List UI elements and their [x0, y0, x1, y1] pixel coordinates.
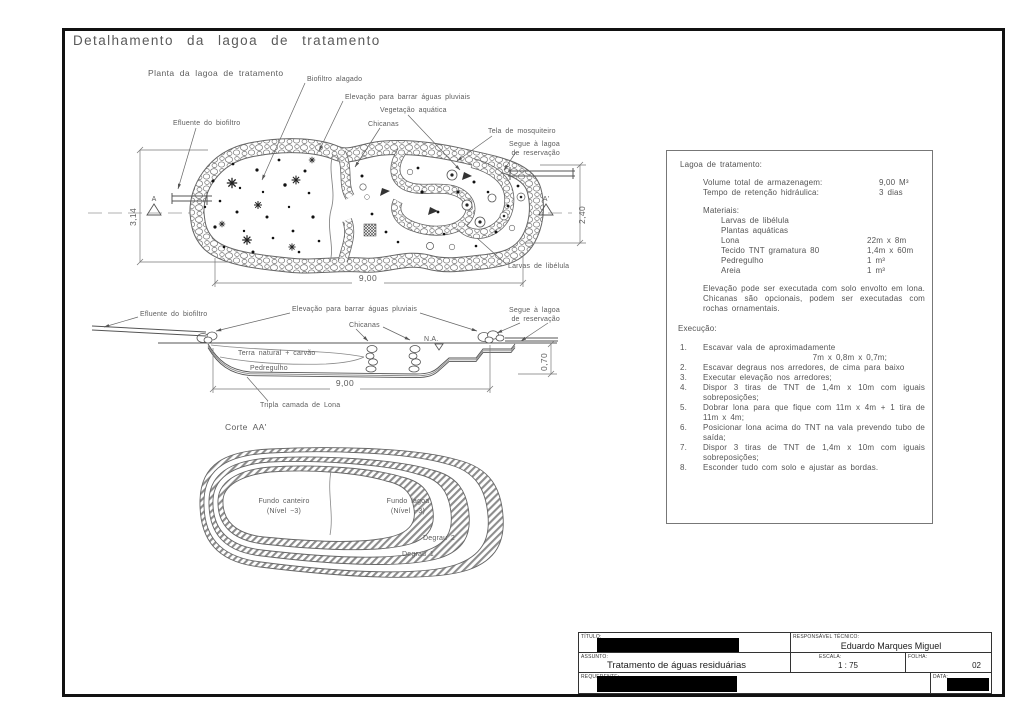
panel-note: Elevação pode ser executada com solo env… [667, 284, 932, 314]
step-number: 4. [680, 383, 703, 403]
spec-label: Volume total de armazenagem: [703, 178, 853, 188]
material-name: Lona [721, 236, 867, 246]
step-number: 5. [680, 403, 703, 423]
material-row: Lona 22m x 8m [667, 236, 932, 246]
execution-step: 2. Escavar degraus nos arredores, de cim… [667, 363, 932, 373]
titleblock-cell-data: DATA: [931, 673, 991, 693]
step-number: 8. [680, 463, 703, 473]
material-qty [867, 226, 925, 236]
execution-step: 5. Dobrar lona para que fique com 11m x … [667, 403, 932, 423]
folha-label: FOLHA: [908, 654, 927, 660]
step-text: Dobrar lona para que fique com 11m x 4m … [703, 403, 932, 423]
step-number: 6. [680, 423, 703, 443]
responsavel-value: Eduardo Marques Miguel [791, 641, 991, 651]
titleblock-cell-titulo: TÍTULO: [579, 633, 791, 653]
material-name: Larvas de libélula [721, 216, 867, 226]
spec-label: Tempo de retenção hidráulica: [703, 188, 853, 198]
step-text: Dispor 3 tiras de TNT de 1,4m x 10m com … [703, 443, 932, 463]
assunto-value: Tratamento de águas residuárias [607, 660, 746, 671]
material-name: Tecido TNT gramatura 80 [721, 246, 867, 256]
material-row: Areia 1 m³ [667, 266, 932, 276]
material-name: Plantas aquáticas [721, 226, 867, 236]
step-number: 2. [680, 363, 703, 373]
materials-heading: Materiais: [667, 206, 932, 216]
execution-heading: Execução: [667, 324, 932, 334]
escala-value: 1 : 75 [791, 661, 905, 670]
step-text: Posicionar lona acima do TNT na vala pre… [703, 423, 932, 443]
step-number: 3. [680, 373, 703, 383]
material-qty: 1 m³ [867, 266, 925, 276]
material-row: Tecido TNT gramatura 80 1,4m x 60m [667, 246, 932, 256]
material-qty: 1,4m x 60m [867, 246, 925, 256]
spec-row: Volume total de armazenagem: 9,00 M³ [667, 178, 932, 188]
spec-value: 3 dias [879, 188, 925, 198]
redaction-bar-requerente [597, 676, 737, 692]
step-text: Dispor 3 tiras de TNT de 1,4m x 10m com … [703, 383, 932, 403]
material-name: Areia [721, 266, 867, 276]
folha-value: 02 [906, 661, 981, 670]
step-text: Executar elevação nos arredores; [703, 373, 932, 383]
step-text: Escavar vala de aproximadamente 7m x 0,8… [703, 343, 932, 363]
title-block: TÍTULO: RESPONSÁVEL TÉCNICO: Eduardo Mar… [578, 632, 992, 694]
data-label: DATA: [933, 674, 948, 680]
page-title: Detalhamento da lagoa de tratamento [73, 33, 381, 48]
step-text: Escavar degraus nos arredores, de cima p… [703, 363, 932, 373]
material-name: Pedregulho [721, 256, 867, 266]
execution-step: 7. Dispor 3 tiras de TNT de 1,4m x 10m c… [667, 443, 932, 463]
execution-step: 6. Posicionar lona acima do TNT na vala … [667, 423, 932, 443]
step-number: 7. [680, 443, 703, 463]
step-text-line2: 7m x 0,8m x 0,7m; [703, 353, 925, 363]
spec-row: Tempo de retenção hidráulica: 3 dias [667, 188, 932, 198]
redaction-bar-data [947, 678, 989, 691]
titleblock-cell-assunto: ASSUNTO: Tratamento de águas residuárias [579, 653, 791, 673]
titleblock-cell-requerente: REQUERENTE: [579, 673, 931, 693]
spec-value: 9,00 M³ [879, 178, 925, 188]
assunto-label: ASSUNTO: [581, 654, 608, 660]
execution-step: 4. Dispor 3 tiras de TNT de 1,4m x 10m c… [667, 383, 932, 403]
titleblock-cell-escala: ESCALA: 1 : 75 [791, 653, 906, 673]
step-text-line: Escavar vala de aproximadamente [703, 343, 835, 352]
material-row: Pedregulho 1 m³ [667, 256, 932, 266]
material-qty: 1 m³ [867, 256, 925, 266]
titleblock-cell-responsavel: RESPONSÁVEL TÉCNICO: Eduardo Marques Mig… [791, 633, 991, 653]
material-qty: 22m x 8m [867, 236, 925, 246]
execution-step: 1. Escavar vala de aproximadamente 7m x … [667, 343, 932, 363]
material-qty [867, 216, 925, 226]
escala-label: ESCALA: [819, 654, 842, 660]
redaction-bar-titulo [597, 638, 739, 652]
material-row: Larvas de libélula [667, 216, 932, 226]
info-panel-heading: Lagoa de tratamento: [667, 160, 932, 170]
responsavel-label: RESPONSÁVEL TÉCNICO: [793, 634, 859, 640]
material-row: Plantas aquáticas [667, 226, 932, 236]
execution-step: 3. Executar elevação nos arredores; [667, 373, 932, 383]
step-text: Esconder tudo com solo e ajustar as bord… [703, 463, 932, 473]
titleblock-cell-folha: FOLHA: 02 [906, 653, 991, 673]
step-number: 1. [680, 343, 703, 363]
execution-step: 8. Esconder tudo com solo e ajustar as b… [667, 463, 932, 473]
info-panel: Lagoa de tratamento: Volume total de arm… [666, 150, 933, 524]
